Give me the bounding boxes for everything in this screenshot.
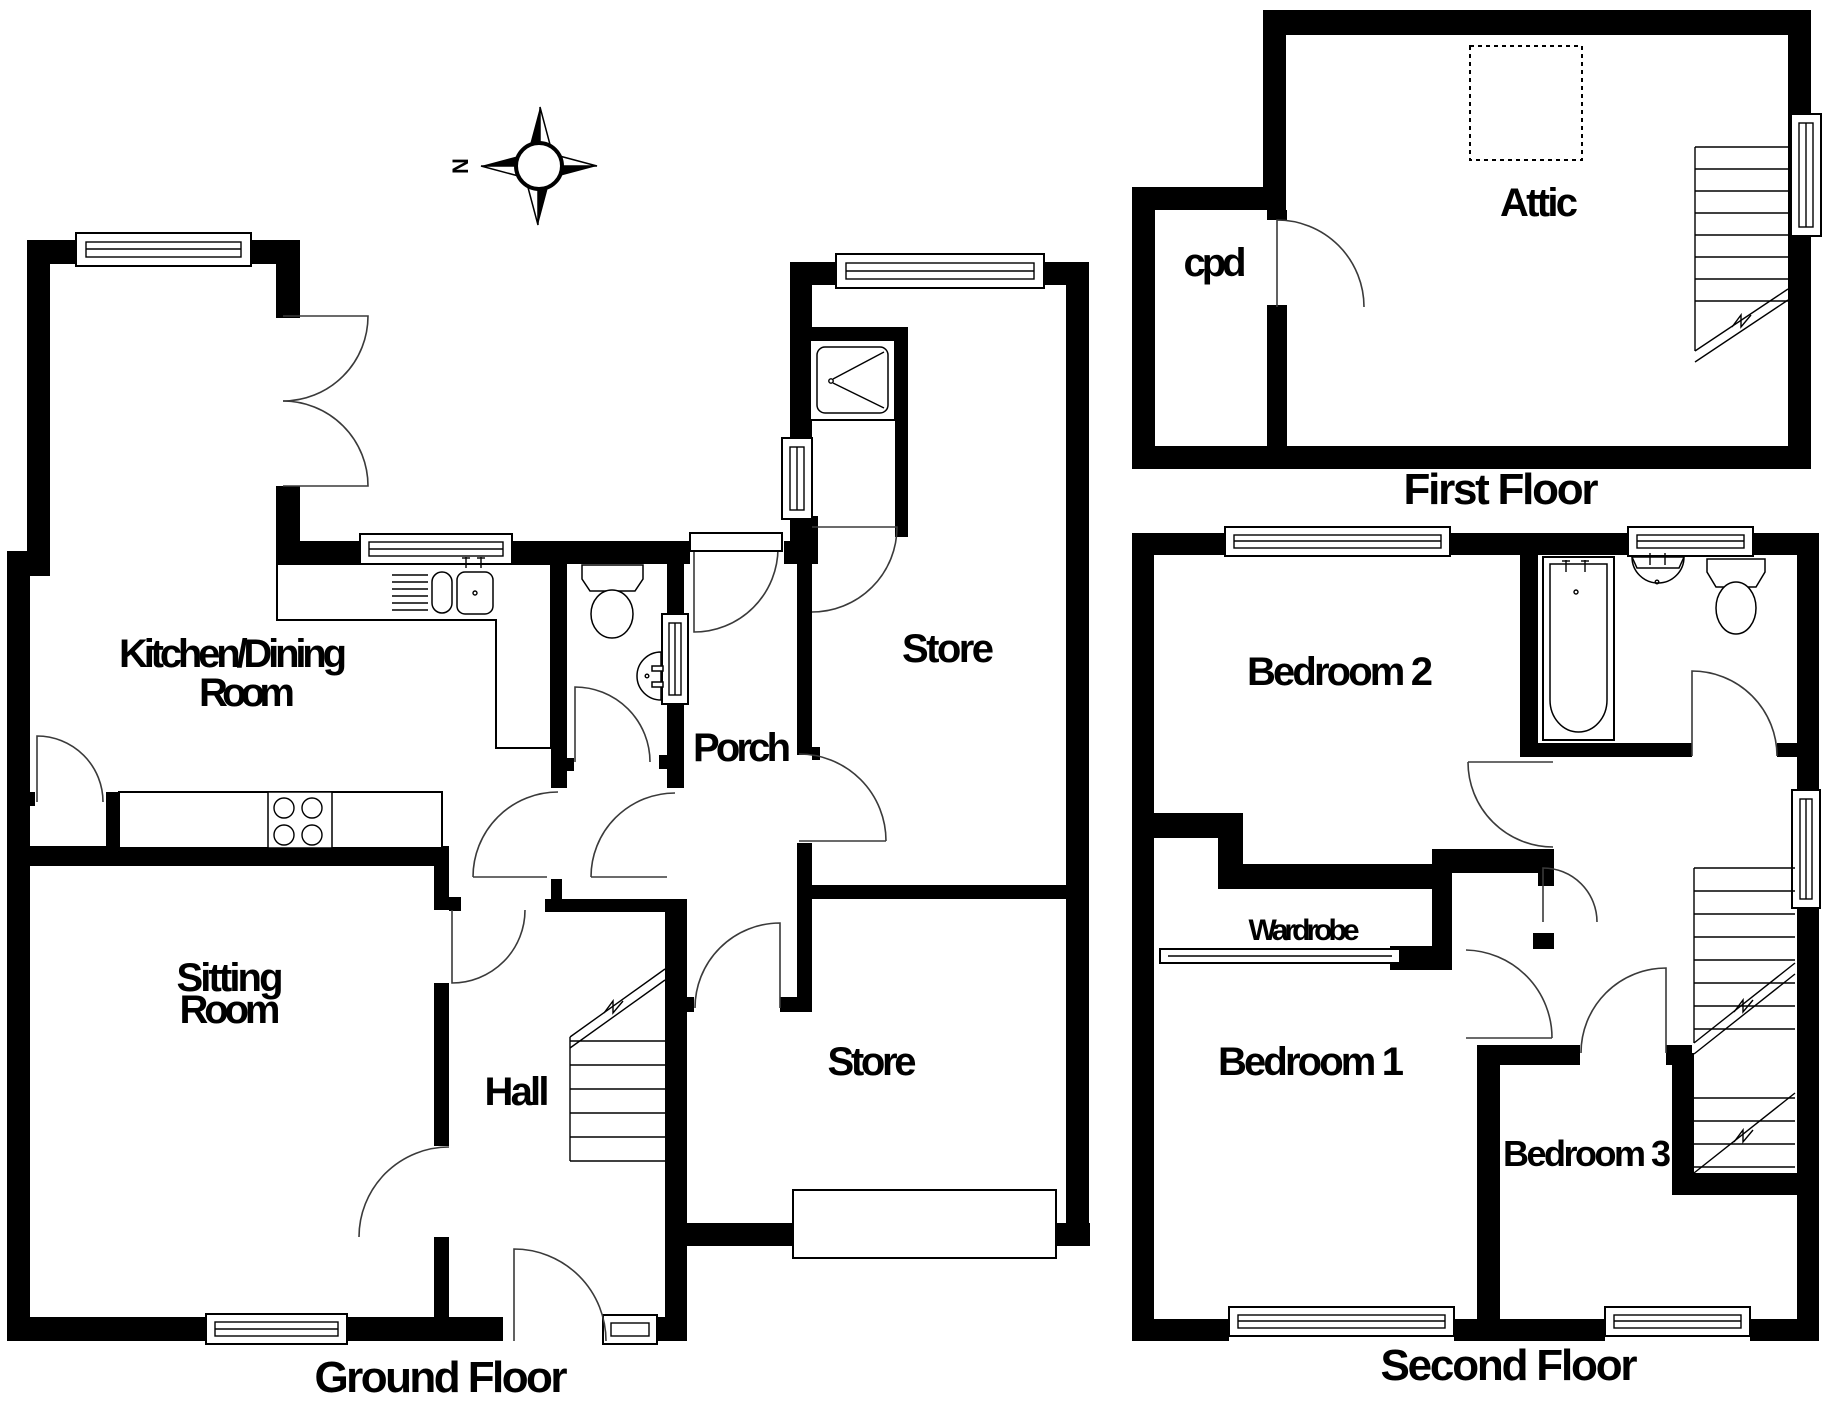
svg-text:Bedroom 2: Bedroom 2 <box>1247 650 1433 694</box>
svg-text:First Floor: First Floor <box>1404 465 1599 514</box>
svg-text:Bedroom 1: Bedroom 1 <box>1218 1040 1404 1084</box>
svg-text:Store: Store <box>902 627 994 671</box>
svg-text:Kitchen/Dining: Kitchen/Dining <box>119 632 347 676</box>
svg-text:cpd: cpd <box>1184 241 1247 285</box>
svg-text:Room: Room <box>199 671 295 715</box>
svg-text:Store: Store <box>828 1040 917 1084</box>
svg-text:Bedroom 3: Bedroom 3 <box>1503 1133 1671 1174</box>
svg-text:N: N <box>448 158 473 174</box>
svg-text:Room: Room <box>180 988 281 1032</box>
svg-text:Attic: Attic <box>1500 181 1578 225</box>
svg-text:Wardrobe: Wardrobe <box>1249 914 1360 947</box>
svg-text:Porch: Porch <box>693 726 791 770</box>
svg-text:Second Floor: Second Floor <box>1381 1341 1638 1390</box>
svg-text:Ground Floor: Ground Floor <box>315 1353 568 1402</box>
svg-text:Hall: Hall <box>485 1070 550 1114</box>
